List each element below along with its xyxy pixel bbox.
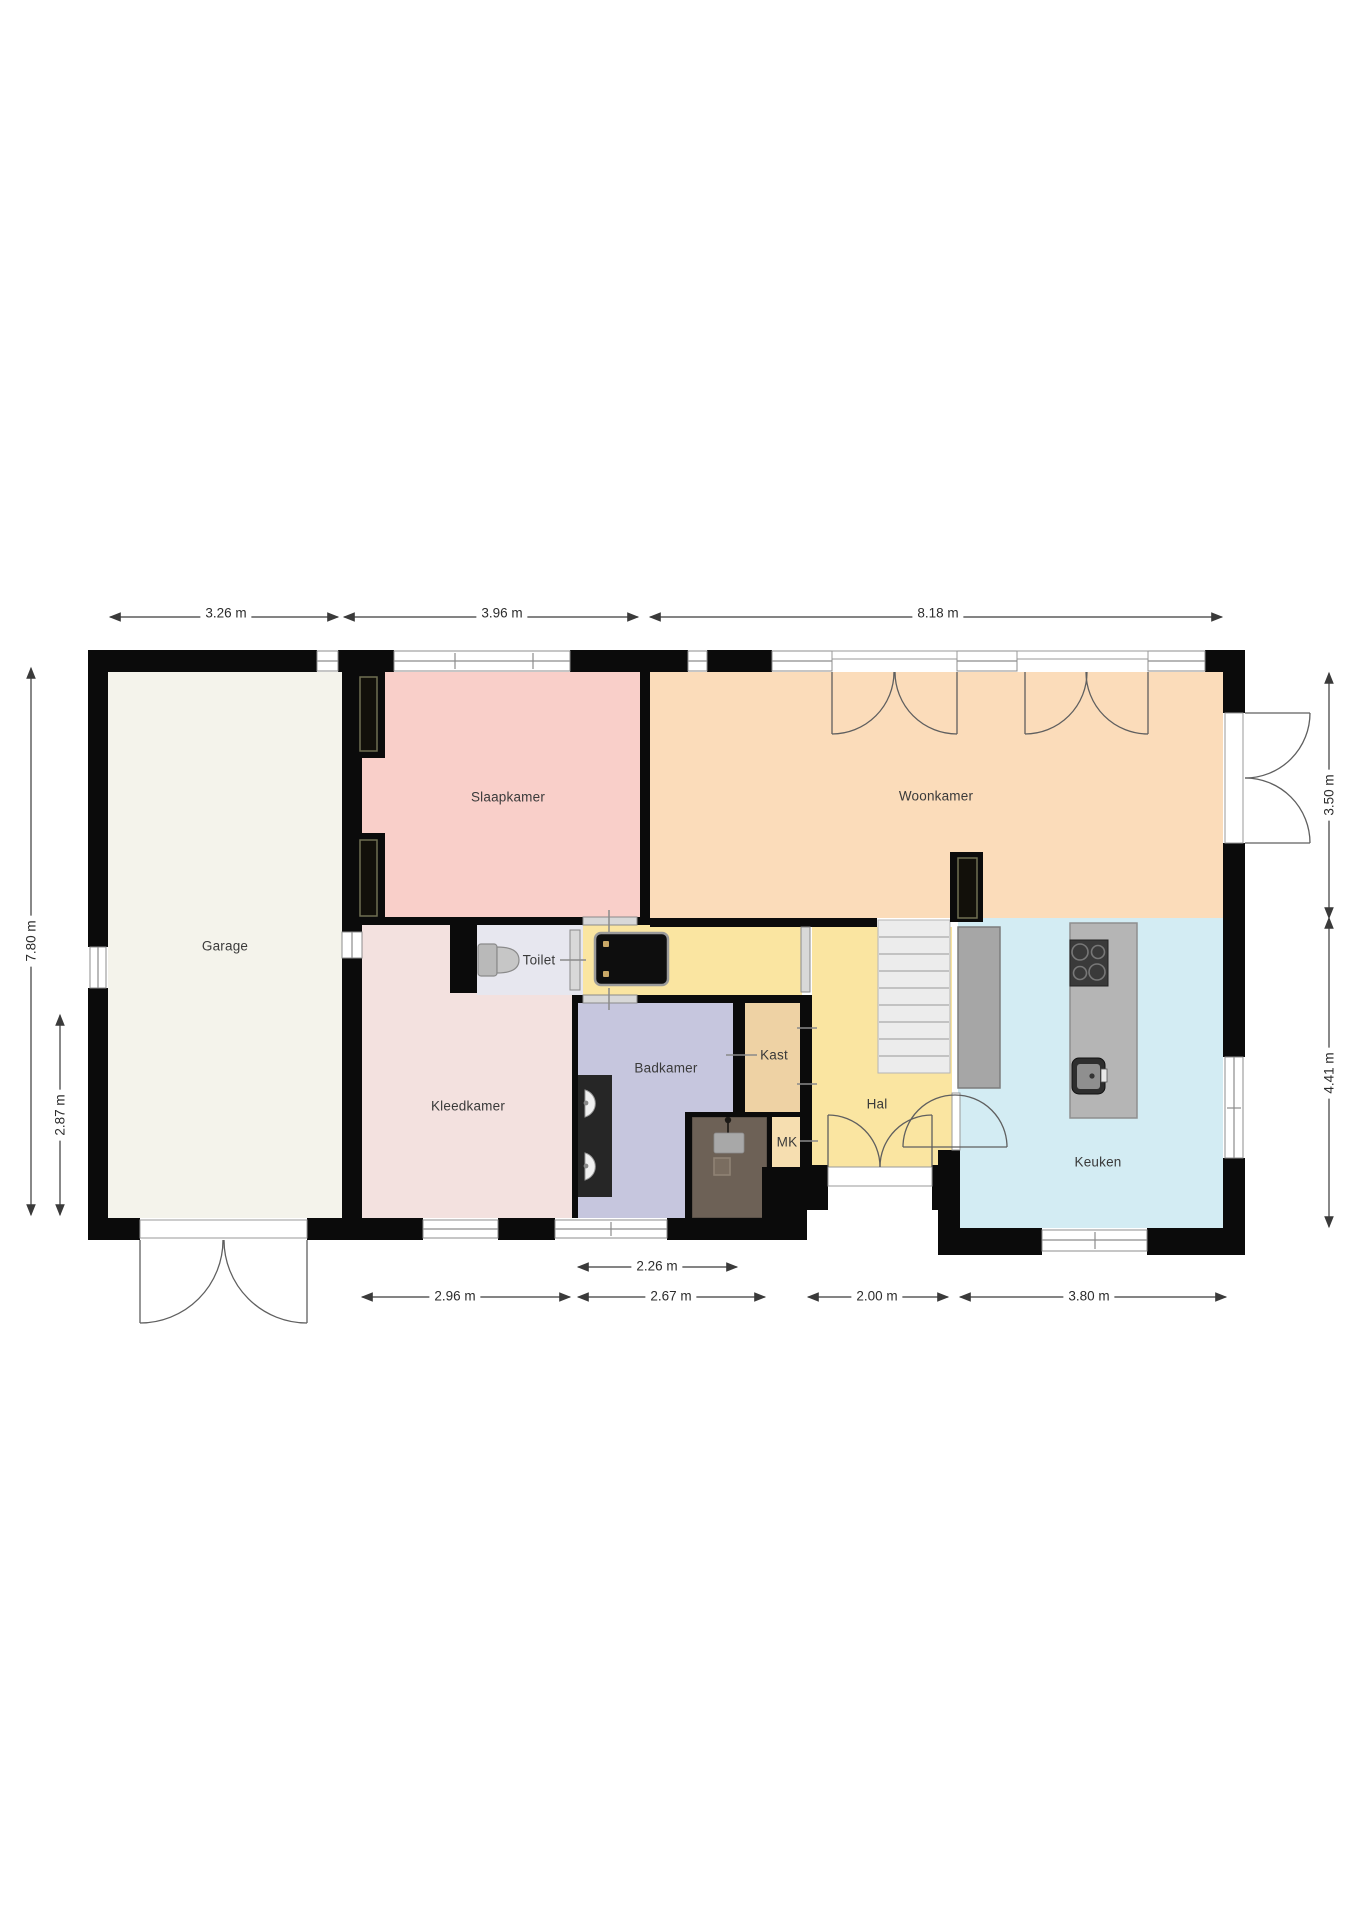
room-garage-floor (108, 672, 342, 1218)
door-passage-hal (801, 927, 810, 992)
pier-recess (360, 840, 377, 916)
shower-mixer-icon (725, 1117, 731, 1123)
floorplan-page: Garage Slaapkamer Woonkamer Kleedkamer T… (0, 0, 1358, 1920)
room-kast-floor (745, 1003, 800, 1112)
stairs (878, 920, 950, 1073)
pier-recess (360, 677, 377, 751)
shower-fixture (692, 1117, 767, 1218)
doorjamb-hal-keuken (952, 1093, 960, 1150)
room-woonkamer-floor (650, 672, 1223, 918)
french-door-swing (1245, 713, 1310, 843)
floorplan-drawing (0, 0, 1358, 1920)
column-recess (958, 858, 977, 918)
doorway-passage-badkamer (583, 995, 637, 1003)
stair-divider-panel (958, 927, 1000, 1088)
room-mk-floor (772, 1117, 800, 1167)
garage-door-swing (140, 1240, 307, 1323)
threshold-woonkamer-door1 (832, 651, 957, 659)
threshold-woonkamer-door2 (1017, 651, 1148, 659)
washbasin-counter (578, 1075, 612, 1197)
threshold-woonkamer-east-door (1225, 713, 1243, 843)
doorway-slaapkamer-passage (583, 917, 637, 925)
room-slaapkamer-floor (362, 672, 640, 917)
shower-head-icon (714, 1133, 744, 1153)
cooktop-fixture (1070, 940, 1108, 986)
shower-drain-icon (714, 1158, 730, 1175)
kitchen-island (1070, 923, 1137, 1118)
threshold-front-door (828, 1167, 932, 1186)
kitchen-sink-fixture (1072, 1058, 1107, 1094)
threshold-garage-door (140, 1220, 307, 1238)
hall-cabinet (595, 933, 668, 985)
